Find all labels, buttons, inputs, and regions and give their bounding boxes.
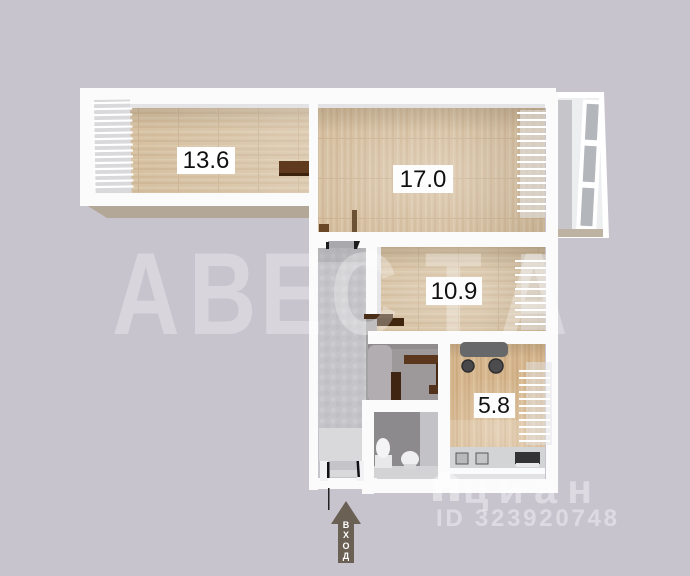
- svg-text:10.9: 10.9: [431, 278, 478, 305]
- svg-text:17.0: 17.0: [400, 166, 447, 193]
- svg-text:О: О: [342, 541, 349, 551]
- svg-text:В: В: [343, 520, 350, 530]
- svg-text:Х: Х: [343, 530, 349, 540]
- svg-text:5.8: 5.8: [478, 392, 510, 418]
- svg-text:13.6: 13.6: [183, 147, 230, 174]
- svg-text:Д: Д: [343, 551, 350, 561]
